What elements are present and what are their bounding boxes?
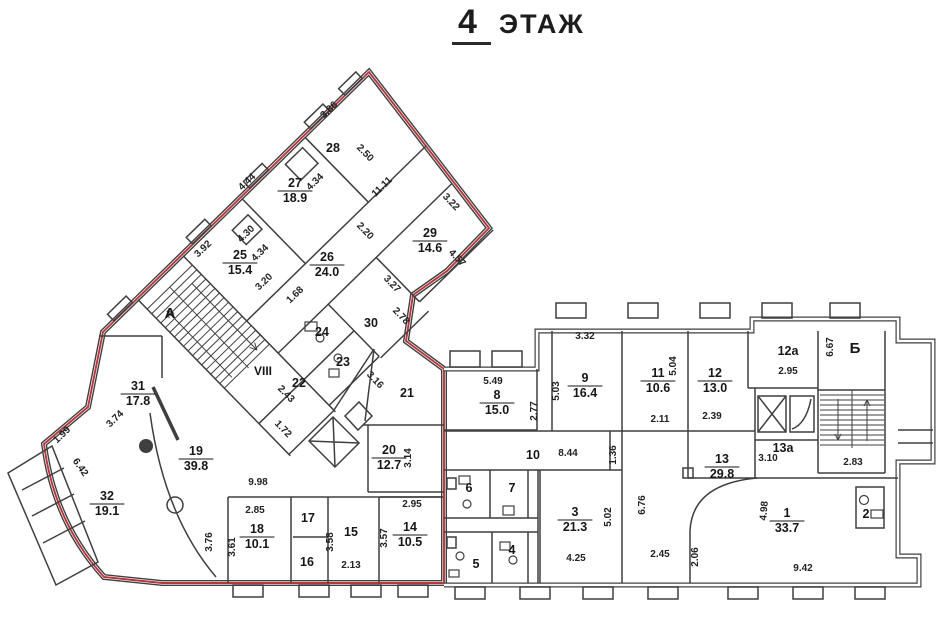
dimension-label: 1.36 <box>608 445 619 465</box>
room-number: 18 <box>250 522 264 536</box>
stairwell-letter: А <box>165 305 176 322</box>
floor-plan-svg: 282718.92515.42624.02914.630242322213117… <box>0 0 940 634</box>
room-area: 17.8 <box>126 394 150 408</box>
stairs-b <box>820 390 884 448</box>
room-number: 25 <box>233 248 247 262</box>
room-number: 23 <box>336 355 350 369</box>
room-area: 10.1 <box>245 537 269 551</box>
room-area: 19.1 <box>95 504 119 518</box>
dimension-label: 3.58 <box>325 532 336 552</box>
room-number: 13 <box>715 452 729 466</box>
room-number: 4 <box>509 543 516 557</box>
dimension-label: 3.14 <box>403 448 414 468</box>
dimension-label: 2.85 <box>245 505 265 516</box>
dimension-label: 8.44 <box>558 448 578 459</box>
dimension-label: 1.68 <box>284 284 306 306</box>
room-area: 33.7 <box>775 521 799 535</box>
dimension-label: 5.49 <box>483 376 503 387</box>
room-number: 14 <box>403 520 417 534</box>
dimension-label: 3.10 <box>758 453 778 464</box>
room-number: 30 <box>364 316 378 330</box>
section-viii-label: VIII <box>254 364 272 378</box>
dimension-label: 3.22 <box>440 191 462 213</box>
dimension-label: 6.67 <box>825 337 836 357</box>
dimension-label: 6.76 <box>637 495 648 515</box>
room-number: 17 <box>301 511 315 525</box>
dimension-label: 2.77 <box>529 401 540 421</box>
dimension-label: 3.61 <box>227 537 238 557</box>
room-number: 2 <box>863 507 870 521</box>
room-area: 15.0 <box>485 403 509 417</box>
dimension-label: 2.11 <box>651 414 670 425</box>
room-area: 21.3 <box>563 520 587 534</box>
room-number: 7 <box>509 481 516 495</box>
floor-number: 4 <box>452 2 491 45</box>
room-number: 9 <box>582 371 589 385</box>
room-area: 39.8 <box>184 459 208 473</box>
dimension-label: 5.02 <box>603 507 614 527</box>
room-number: 15 <box>344 525 358 539</box>
room-number: 26 <box>320 250 334 264</box>
floor-plan-page: 4ЭТАЖ <box>0 0 940 634</box>
dimension-label: 2.95 <box>778 366 798 377</box>
dimension-label: 2.20 <box>354 220 376 242</box>
dimension-label: 2.13 <box>341 560 361 571</box>
dimension-label: 2.45 <box>650 549 670 560</box>
room-area: 10.5 <box>398 535 422 549</box>
dimension-label: 2.83 <box>843 457 863 468</box>
room-area: 14.6 <box>418 241 442 255</box>
dimension-label: 4.30 <box>235 223 257 245</box>
dimension-label: 1.72 <box>272 418 294 440</box>
dimension-label: 2.06 <box>690 547 701 567</box>
room-number: 1 <box>784 506 791 520</box>
room-area: 18.9 <box>283 191 307 205</box>
dimension-label: 3.57 <box>379 528 390 548</box>
dimension-label: 5.04 <box>668 356 679 376</box>
room-area: 16.4 <box>573 386 597 400</box>
room-number: 27 <box>288 176 302 190</box>
dimension-label: 1.99 <box>51 424 73 446</box>
dimension-label: 2.39 <box>702 411 722 422</box>
room-number: 5 <box>473 557 480 571</box>
room-number: 19 <box>189 444 203 458</box>
dimension-label: 3.74 <box>104 408 126 430</box>
room-number: 31 <box>131 379 145 393</box>
dimension-label: 9.42 <box>793 563 813 574</box>
dimension-label: 11.11 <box>370 175 395 200</box>
dimension-label: 6.42 <box>70 456 90 479</box>
room-number: 32 <box>100 489 114 503</box>
room-number: 6 <box>466 481 473 495</box>
dimension-label: 4.98 <box>758 500 771 521</box>
room-area: 13.0 <box>703 381 727 395</box>
dimension-label: 3.16 <box>364 369 386 391</box>
room-area: 29.8 <box>710 467 734 481</box>
page-title: 4ЭТАЖ <box>452 2 585 45</box>
dimension-label: 4.25 <box>566 553 586 564</box>
dimension-label: 2.95 <box>402 499 422 510</box>
room-number: 8 <box>494 388 501 402</box>
dimension-label: 4.34 <box>249 242 271 264</box>
dimension-label: 2.50 <box>354 142 376 164</box>
room-area: 10.6 <box>646 381 670 395</box>
room-number: 24 <box>315 325 329 339</box>
room-number: 3 <box>572 505 579 519</box>
floor-word: ЭТАЖ <box>499 9 585 39</box>
dimension-label: 3.76 <box>204 532 215 552</box>
room-number: 12а <box>778 344 800 358</box>
room-area: 24.0 <box>315 265 339 279</box>
dimension-label: 3.32 <box>575 331 595 342</box>
room-number: 10 <box>526 448 540 462</box>
room-number: 21 <box>400 386 414 400</box>
room-number: 28 <box>326 141 340 155</box>
room-number: 12 <box>708 366 722 380</box>
dimension-label: 3.27 <box>381 273 403 295</box>
elevator-right-icon <box>758 396 814 432</box>
dimension-label: 9.98 <box>248 477 268 488</box>
room-number: 29 <box>423 226 437 240</box>
room-area: 12.7 <box>377 458 401 472</box>
room-number: 20 <box>382 443 396 457</box>
stairwell-letter: Б <box>850 340 861 357</box>
room-number: 16 <box>300 555 314 569</box>
dimension-label: 5.03 <box>551 381 562 401</box>
dimension-label: 4.34 <box>304 171 326 193</box>
room-number: 11 <box>651 366 664 380</box>
room-area: 15.4 <box>228 263 252 277</box>
dimension-label: 3.20 <box>253 271 275 293</box>
dimension-label: 4.44 <box>236 171 258 193</box>
elevator-left-icon <box>309 402 372 467</box>
room-number: 22 <box>292 376 306 390</box>
